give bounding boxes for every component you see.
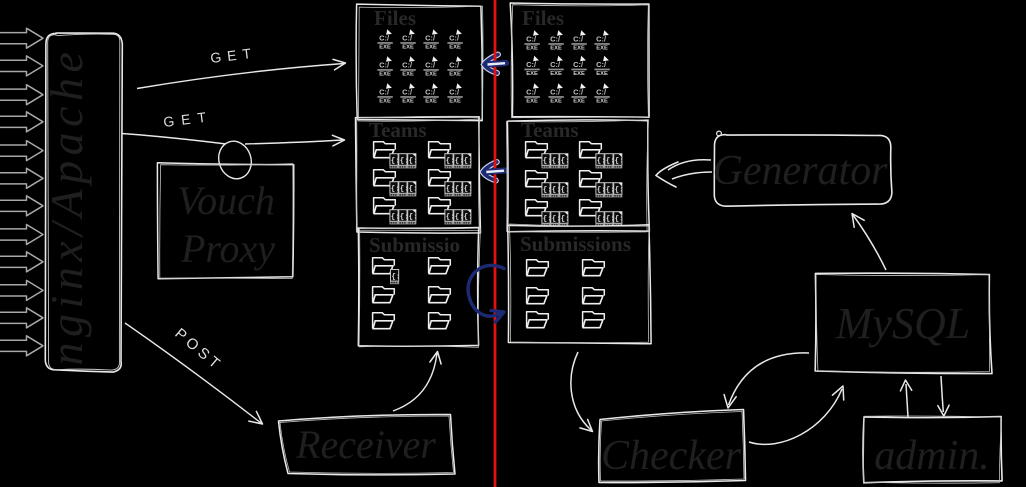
- svg-text:MySQL: MySQL: [835, 299, 970, 348]
- svg-text:Submissions: Submissions: [520, 232, 631, 256]
- svg-text:Receiver: Receiver: [295, 422, 436, 467]
- svg-text:Generator: Generator: [713, 148, 889, 194]
- svg-text:Proxy: Proxy: [180, 226, 275, 271]
- svg-text:Vouch: Vouch: [177, 178, 275, 223]
- svg-text:Teams: Teams: [369, 118, 427, 142]
- svg-text:Files: Files: [374, 6, 416, 30]
- svg-text:Checker: Checker: [601, 433, 742, 479]
- svg-text:admin.: admin.: [874, 433, 990, 479]
- svg-text:Submissio: Submissio: [369, 233, 460, 257]
- svg-text:Files: Files: [522, 6, 564, 30]
- svg-text:nginx/Apache: nginx/Apache: [41, 47, 92, 366]
- svg-text:Teams: Teams: [521, 118, 579, 142]
